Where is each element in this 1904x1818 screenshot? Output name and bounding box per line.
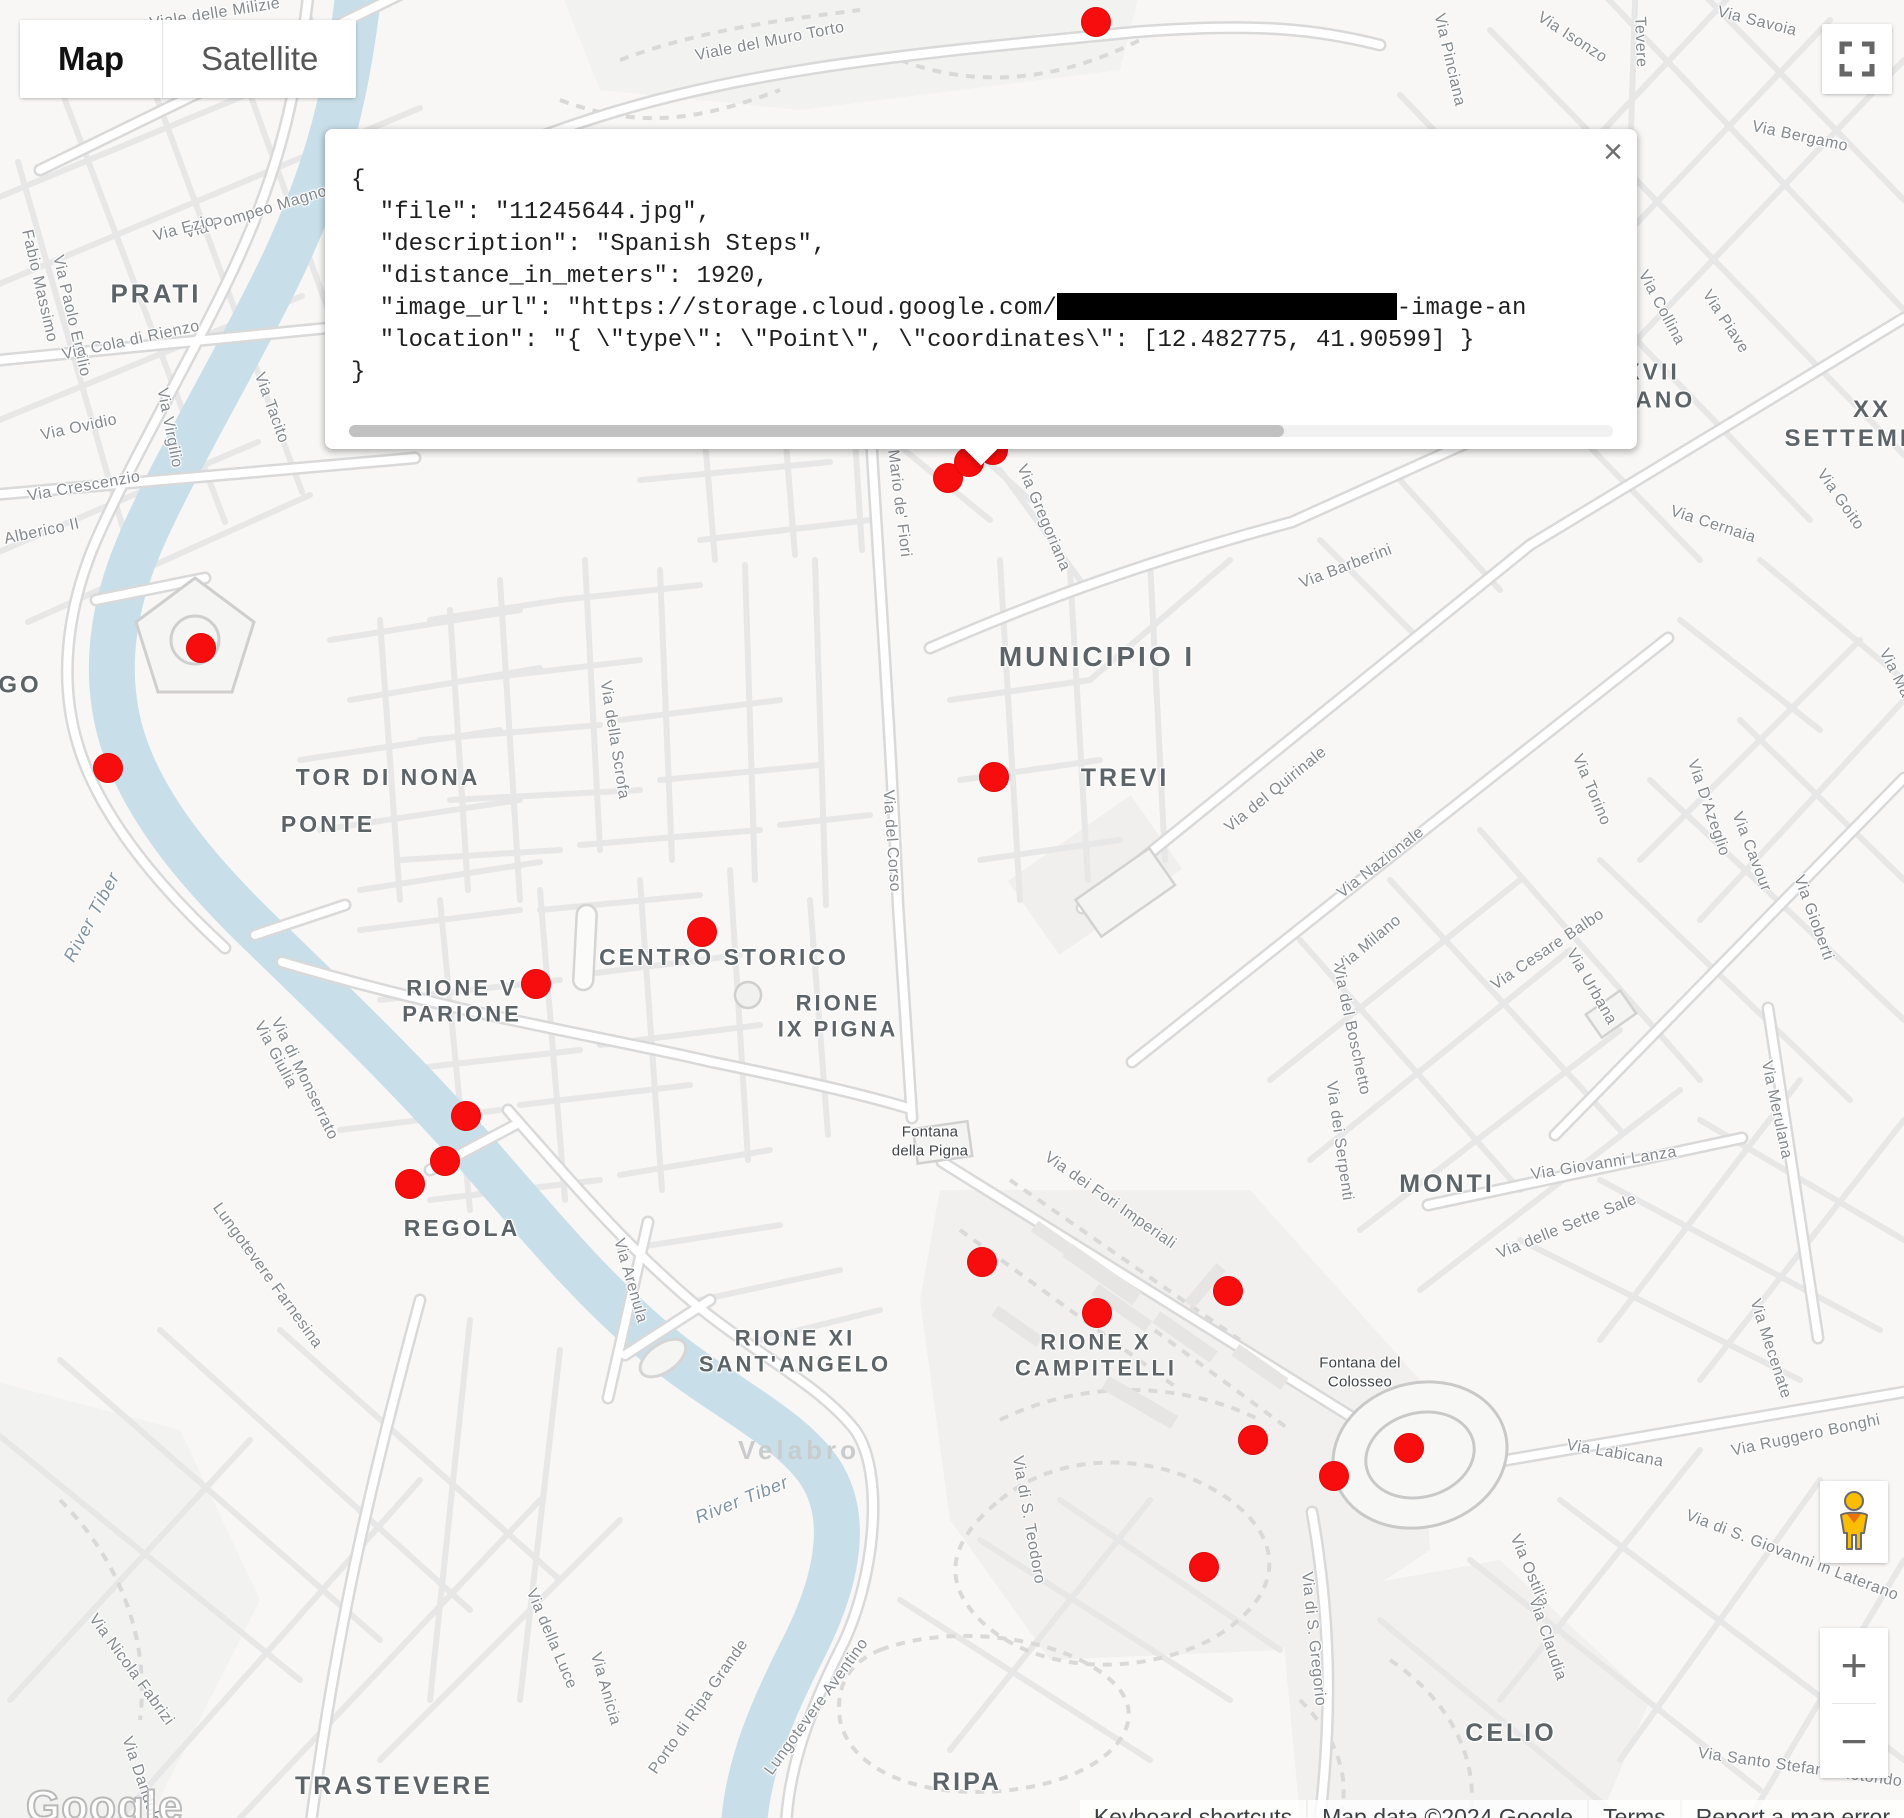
pegman-street-view-icon [1833, 1491, 1875, 1553]
info-window-line: "description": "Spanish Steps", [351, 229, 1617, 261]
info-window-line: } [351, 357, 1617, 389]
map-marker[interactable] [1189, 1552, 1219, 1582]
info-window-line: "image_url": "https://storage.cloud.goog… [351, 293, 1617, 325]
info-window: { "file": "11245644.jpg", "description":… [325, 129, 1637, 449]
map-type-control: Map Satellite [20, 20, 356, 98]
map-marker[interactable] [521, 969, 551, 999]
map-marker[interactable] [967, 1247, 997, 1277]
info-window-line: "location": "{ \"type\": \"Point\", \"co… [351, 325, 1617, 357]
map-marker[interactable] [979, 762, 1009, 792]
pantheon [735, 982, 761, 1008]
zoom-out-button[interactable]: − [1820, 1704, 1888, 1779]
attribution-item[interactable]: Keyboard shortcuts [1080, 1800, 1306, 1818]
info-window-line: { [351, 165, 1617, 197]
redaction-bar [1057, 293, 1397, 320]
pegman-button[interactable] [1820, 1481, 1888, 1563]
map-marker[interactable] [1081, 7, 1111, 37]
google-logo: Google [26, 1782, 184, 1818]
map-marker[interactable] [451, 1101, 481, 1131]
attribution-bar: Keyboard shortcutsMap data ©2024 GoogleT… [1080, 1800, 1904, 1818]
info-window-scrollbar-thumb[interactable] [349, 425, 1284, 437]
vittoriano [913, 1121, 972, 1163]
satellite-button[interactable]: Satellite [162, 20, 356, 98]
map-marker[interactable] [1082, 1298, 1112, 1328]
zoom-control: + − [1820, 1628, 1888, 1778]
map-marker[interactable] [1319, 1461, 1349, 1491]
attribution-item[interactable]: Map data ©2024 Google [1308, 1800, 1587, 1818]
fullscreen-icon [1839, 41, 1875, 77]
map-marker[interactable] [1213, 1276, 1243, 1306]
close-icon[interactable]: × [1603, 135, 1623, 169]
info-window-line: "file": "11245644.jpg", [351, 197, 1617, 229]
map-marker[interactable] [186, 633, 216, 663]
info-window-line: "distance_in_meters": 1920, [351, 261, 1617, 293]
fullscreen-button[interactable] [1822, 24, 1892, 94]
map-canvas[interactable]: Viale delle MilizieViale del Muro TortoV… [0, 0, 1904, 1818]
map-marker[interactable] [687, 917, 717, 947]
map-button[interactable]: Map [20, 20, 162, 98]
map-marker[interactable] [430, 1146, 460, 1176]
zoom-in-button[interactable]: + [1820, 1628, 1888, 1703]
info-window-content: { "file": "11245644.jpg", "description":… [351, 165, 1617, 389]
attribution-item[interactable]: Terms [1589, 1800, 1680, 1818]
piazza-navona [573, 905, 597, 991]
info-window-scrollbar[interactable] [349, 425, 1613, 437]
attribution-item[interactable]: Report a map error [1682, 1800, 1904, 1818]
map-marker[interactable] [1394, 1433, 1424, 1463]
map-marker[interactable] [395, 1169, 425, 1199]
map-marker[interactable] [1238, 1425, 1268, 1455]
map-marker[interactable] [93, 753, 123, 783]
info-window-body: { "file": "11245644.jpg", "description":… [325, 129, 1637, 449]
